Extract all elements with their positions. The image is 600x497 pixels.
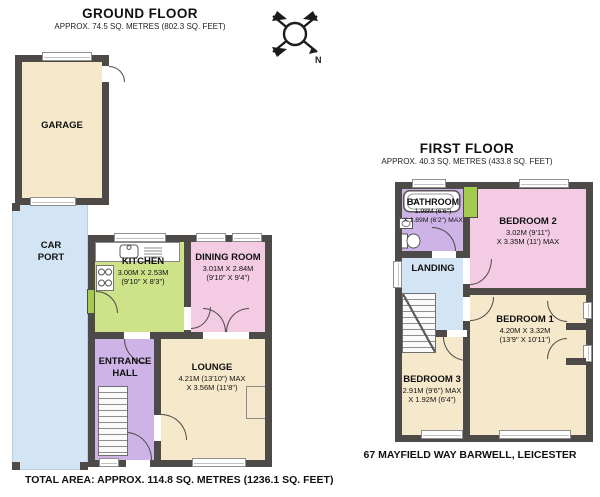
bedroom1-window	[499, 430, 571, 439]
first-floor-subtitle: APPROX. 40.3 SQ. METRES (433.8 SQ. FEET)	[357, 157, 577, 166]
staircase-ground	[98, 386, 128, 456]
landing-window	[393, 261, 402, 288]
carport-post-bottom-left	[12, 462, 20, 470]
floorplan-canvas: GROUND FLOOR APPROX. 74.5 SQ. METRES (80…	[0, 0, 600, 497]
bathroom-window	[412, 179, 446, 188]
bathroom-label: BATHROOM 1.98M (6'6") X 1.89M (6'2") MAX	[394, 197, 472, 225]
wardrobe-door-panel-top	[583, 302, 592, 319]
side-door-leaf	[87, 289, 95, 314]
carport-post-bottom-right	[80, 462, 88, 470]
dining-window-left	[196, 233, 226, 242]
garage-label: GARAGE	[22, 120, 102, 132]
wardrobe-wall-stub-bottom	[566, 358, 586, 365]
lounge-dim1: 4.21M (13'10") MAX	[162, 374, 262, 383]
bedroom1-door-gap	[463, 297, 470, 321]
dining-room-name: DINING ROOM	[195, 252, 261, 264]
front-door-gap	[126, 460, 150, 467]
dining-room-dim1: 3.01M X 2.84M	[195, 264, 261, 273]
north-label: N	[315, 55, 322, 64]
kitchen-dim2: (9'10" X 8'3")	[106, 277, 180, 286]
ground-floor-title: GROUND FLOOR APPROX. 74.5 SQ. METRES (80…	[40, 6, 240, 31]
french-door-gap	[203, 332, 249, 339]
bathroom-dim1: 1.98M (6'6")	[394, 208, 472, 216]
kitchen-name: KITCHEN	[106, 256, 180, 268]
first-floor-title-text: FIRST FLOOR	[357, 141, 577, 156]
bedroom3-dim2: X 1.92M (6'4")	[400, 395, 464, 404]
total-area-caption: TOTAL AREA: APPROX. 114.8 SQ. METRES (12…	[25, 474, 333, 486]
landing-name: LANDING	[403, 263, 463, 275]
bedroom2-dim2: X 3.35M (11') MAX	[470, 237, 586, 246]
first-floor-title: FIRST FLOOR APPROX. 40.3 SQ. METRES (433…	[357, 141, 577, 166]
dining-window-right	[232, 233, 262, 242]
compass-icon: N	[263, 6, 327, 64]
bedroom2-label: BEDROOM 2 3.02M (9'11") X 3.35M (11') MA…	[470, 216, 586, 247]
bedroom1-label: BEDROOM 1 4.20M X 3.32M (13'9" X 10'11")	[470, 314, 580, 345]
lounge-dim2: X 3.56M (11'8")	[162, 383, 262, 392]
kitchen-window	[114, 233, 166, 242]
lounge-door-gap	[154, 415, 161, 441]
bathroom-door-gap	[432, 251, 456, 258]
carport-name: CAR PORT	[31, 240, 71, 264]
kitchen-dim1: 3.00M X 2.53M	[106, 268, 180, 277]
bathroom-name: BATHROOM	[394, 197, 472, 208]
bedroom1-dim1: 4.20M X 3.32M	[470, 326, 580, 335]
bedroom2-window	[519, 179, 569, 188]
bedroom2-door-gap	[463, 258, 470, 284]
hall-window	[99, 458, 119, 467]
bedroom3-label: BEDROOM 3 2.91M (9'6") MAX X 1.92M (6'4"…	[400, 374, 464, 405]
bedroom2-dim1: 3.02M (9'11")	[470, 228, 586, 237]
bedroom3-dim1: 2.91M (9'6") MAX	[400, 386, 464, 395]
entrance-hall-name: ENTRANCE HALL	[96, 356, 154, 380]
garage-door-arc	[109, 66, 125, 82]
address-caption: 67 MAYFIELD WAY BARWELL, LEICESTER	[360, 449, 580, 461]
toilet-icon	[401, 231, 421, 251]
entrance-hall-label: ENTRANCE HALL	[96, 356, 154, 380]
lounge-window	[192, 458, 246, 467]
kitchen-hall-door-gap	[124, 332, 150, 339]
bedroom3-window	[421, 430, 463, 439]
garage-door-gap	[102, 66, 109, 82]
kitchen-label: KITCHEN 3.00M X 2.53M (9'10" X 8'3")	[106, 256, 180, 287]
dining-room-label: DINING ROOM 3.01M X 2.84M (9'10" X 9'4")	[195, 252, 261, 283]
kitchen-dining-door-gap	[184, 307, 191, 330]
garage-window-top	[42, 52, 92, 61]
bathroom-dim2: X 1.89M (6'2") MAX	[394, 217, 472, 225]
lounge-name: LOUNGE	[162, 362, 262, 374]
lounge-label: LOUNGE 4.21M (13'10") MAX X 3.56M (11'8"…	[162, 362, 262, 393]
bedroom3-door-gap	[447, 330, 467, 337]
ground-floor-title-text: GROUND FLOOR	[40, 6, 240, 21]
landing-label: LANDING	[403, 263, 463, 275]
garage-name: GARAGE	[22, 120, 102, 132]
bedroom2-name: BEDROOM 2	[470, 216, 586, 228]
dining-room-dim2: (9'10" X 9'4")	[195, 273, 261, 282]
bedroom3-name: BEDROOM 3	[400, 374, 464, 386]
carport-label: CAR PORT	[31, 240, 71, 264]
bedroom1-name: BEDROOM 1	[470, 314, 580, 326]
bedroom1-dim2: (13'9" X 10'11")	[470, 335, 580, 344]
ground-floor-subtitle: APPROX. 74.5 SQ. METRES (802.3 SQ. FEET)	[40, 22, 240, 31]
garage-rear-window	[30, 197, 76, 206]
staircase-first	[402, 293, 436, 353]
